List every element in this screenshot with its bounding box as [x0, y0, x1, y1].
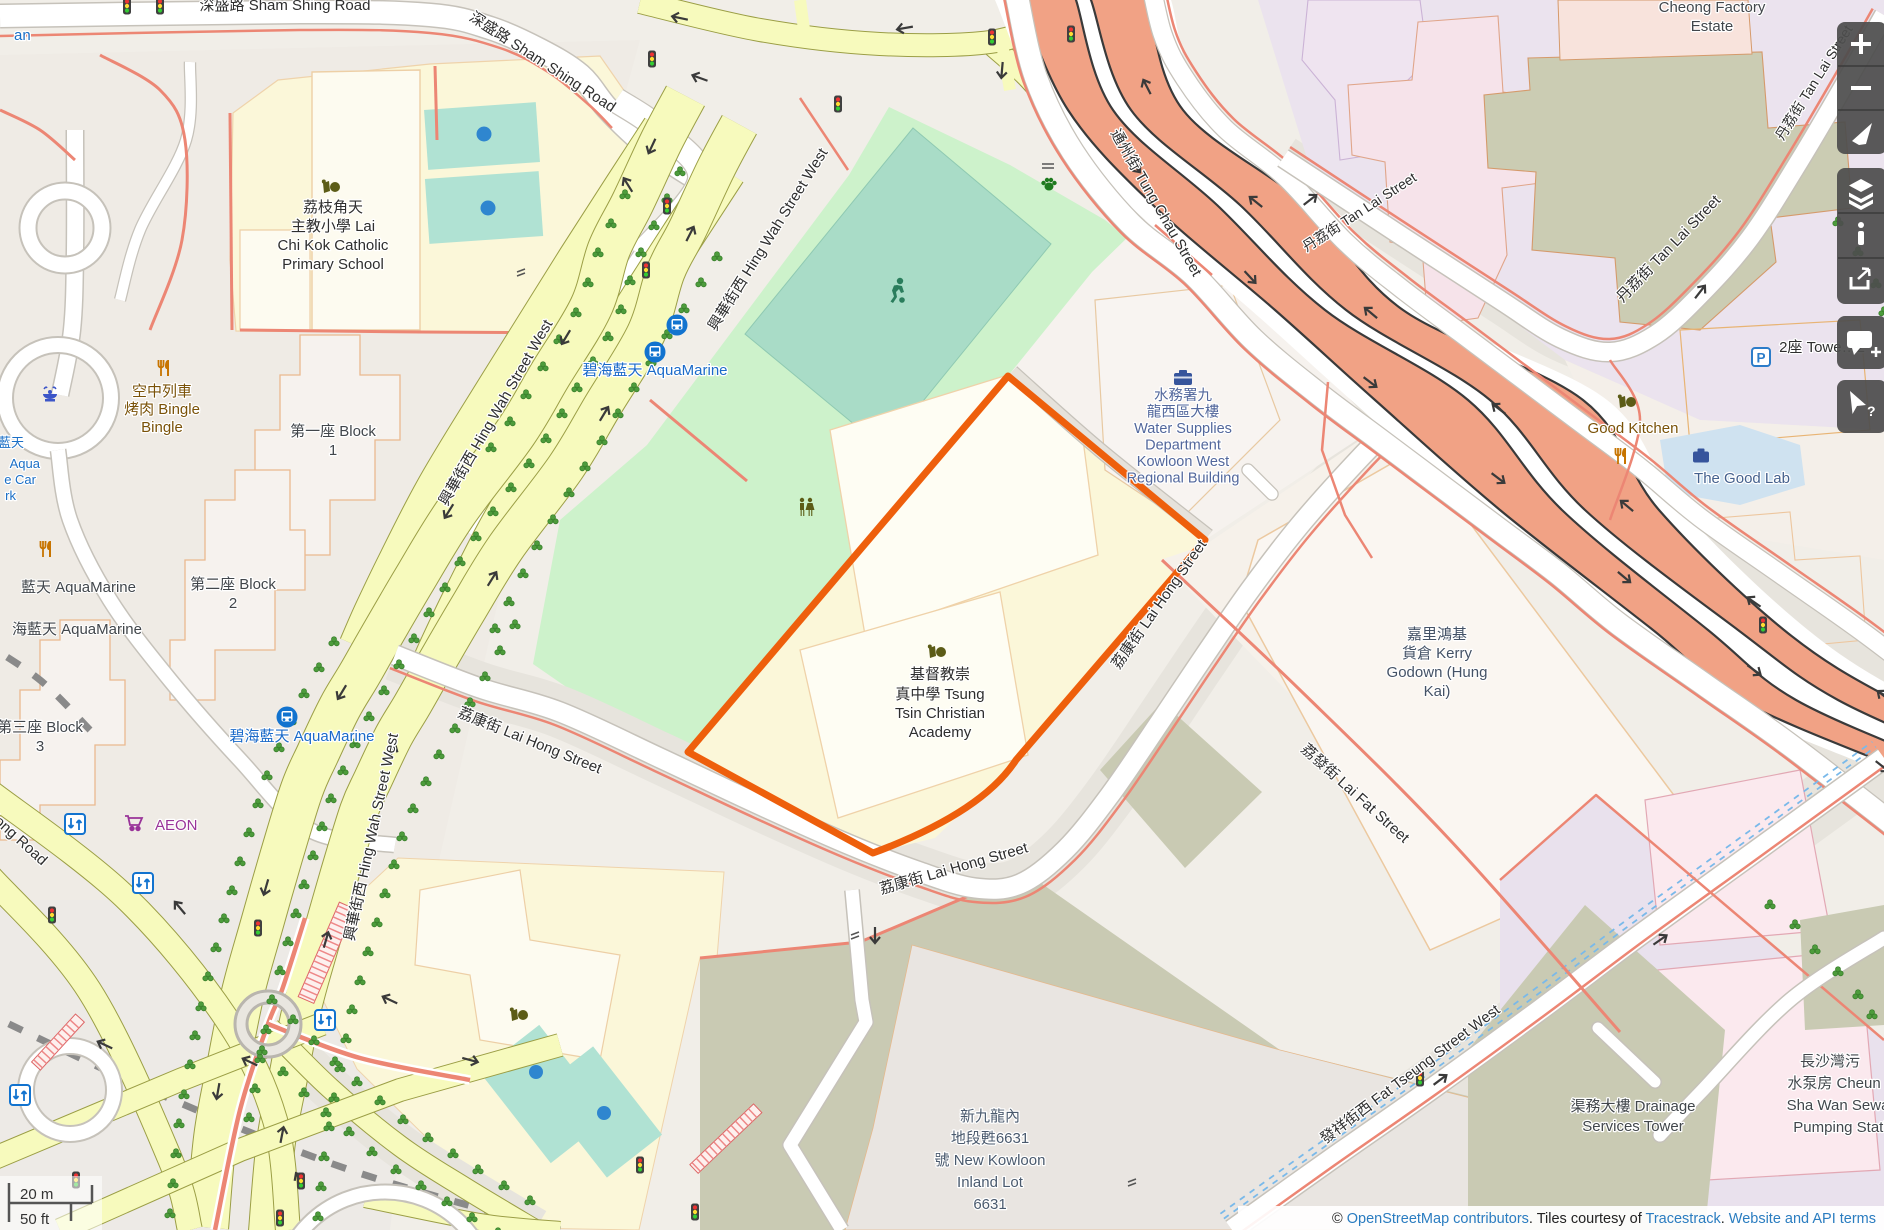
svg-text:Water Supplies: Water Supplies — [1134, 421, 1232, 437]
svg-text:P: P — [1756, 351, 1765, 366]
svg-text:Academy: Academy — [909, 724, 972, 741]
svg-text:6631: 6631 — [973, 1196, 1006, 1213]
svg-text:an: an — [14, 27, 31, 44]
svg-text:碧海藍天 AquaMarine: 碧海藍天 AquaMarine — [229, 728, 374, 745]
svg-text:50 ft: 50 ft — [20, 1211, 50, 1228]
svg-text:長沙灣污: 長沙灣污 — [1800, 1053, 1860, 1070]
svg-text:Department: Department — [1145, 438, 1221, 454]
svg-text:主教小學 Lai: 主教小學 Lai — [291, 217, 375, 235]
svg-text:空中列車: 空中列車 — [132, 383, 192, 400]
svg-text:深盛路 Sham Shing Road: 深盛路 Sham Shing Road — [200, 0, 371, 14]
svg-text:Bingle: Bingle — [141, 419, 183, 436]
svg-text:第三座 Block: 第三座 Block — [0, 718, 83, 736]
svg-text:?: ? — [1867, 403, 1876, 419]
svg-text:真中學 Tsung: 真中學 Tsung — [895, 685, 984, 703]
svg-text:Regional Building: Regional Building — [1127, 471, 1240, 487]
svg-text:Chi Kok Catholic: Chi Kok Catholic — [278, 237, 389, 254]
svg-text:貨倉 Kerry: 貨倉 Kerry — [1402, 645, 1473, 662]
svg-text:第二座 Block: 第二座 Block — [190, 575, 276, 593]
svg-text:碧海藍天 AquaMarine: 碧海藍天 AquaMarine — [582, 362, 727, 379]
svg-text:龍西區大樓: 龍西區大樓 — [1147, 404, 1220, 421]
svg-text:烤肉 Bingle: 烤肉 Bingle — [124, 401, 200, 418]
svg-text:Estate: Estate — [1691, 18, 1734, 35]
svg-text:3: 3 — [36, 738, 44, 755]
svg-text:20 m: 20 m — [20, 1186, 53, 1203]
svg-text:Kai): Kai) — [1424, 683, 1451, 700]
svg-text:地段甦6631: 地段甦6631 — [951, 1130, 1029, 1147]
svg-text:第一座 Block: 第一座 Block — [290, 422, 376, 440]
svg-text:Kowloon West: Kowloon West — [1137, 454, 1229, 470]
svg-text:Aqua: Aqua — [10, 456, 41, 471]
svg-text:海藍天 AquaMarine: 海藍天 AquaMarine — [12, 621, 142, 638]
svg-text:Cheong Factory: Cheong Factory — [1659, 0, 1766, 16]
svg-text:Godown (Hung: Godown (Hung — [1387, 664, 1488, 681]
svg-text:Primary School: Primary School — [282, 256, 384, 273]
svg-text:rk: rk — [5, 488, 16, 503]
svg-text:Tsin Christian: Tsin Christian — [895, 705, 985, 722]
svg-text:2: 2 — [229, 595, 237, 612]
svg-text:e Car: e Car — [4, 472, 36, 487]
svg-text:號 New Kowloon: 號 New Kowloon — [935, 1152, 1046, 1169]
svg-text:水務署九: 水務署九 — [1154, 387, 1212, 404]
svg-text:渠務大樓 Drainage: 渠務大樓 Drainage — [1570, 1098, 1695, 1115]
svg-text:The Good Lab: The Good Lab — [1694, 470, 1790, 487]
svg-text:AEON: AEON — [155, 817, 198, 834]
svg-text:Good Kitchen: Good Kitchen — [1588, 420, 1679, 437]
svg-text:新九龍內: 新九龍內 — [960, 1108, 1020, 1125]
svg-text:水泵房 Cheun: 水泵房 Cheun — [1787, 1075, 1880, 1092]
svg-text:藍天: 藍天 — [0, 435, 24, 450]
svg-text:Inland Lot: Inland Lot — [957, 1174, 1024, 1191]
svg-text:荔枝角天: 荔枝角天 — [303, 199, 363, 216]
svg-text:1: 1 — [329, 442, 337, 459]
svg-text:藍天 AquaMarine: 藍天 AquaMarine — [21, 579, 136, 596]
svg-text:Sha Wan Sewa: Sha Wan Sewa — [1787, 1097, 1884, 1114]
svg-text:Services Tower: Services Tower — [1582, 1118, 1683, 1135]
svg-text:Pumping Stati: Pumping Stati — [1793, 1119, 1884, 1136]
svg-text:基督教崇: 基督教崇 — [910, 666, 970, 683]
svg-text:© OpenStreetMap contributors.: © OpenStreetMap contributors. Tiles cour… — [1332, 1211, 1876, 1227]
svg-text:嘉里鴻基: 嘉里鴻基 — [1407, 626, 1467, 643]
